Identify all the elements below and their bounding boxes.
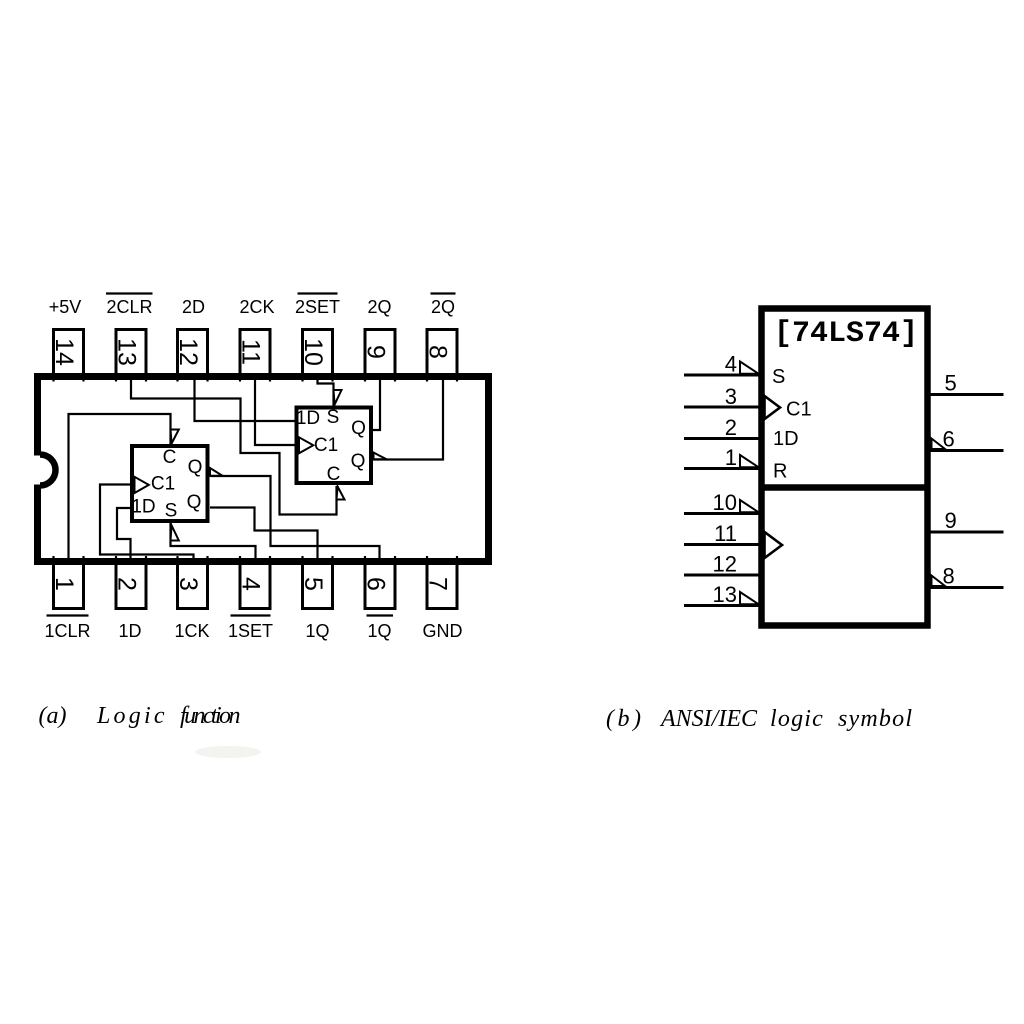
svg-text:12: 12 [713, 552, 737, 577]
svg-text:3: 3 [174, 577, 202, 591]
svg-text:11: 11 [237, 339, 265, 365]
svg-text:10: 10 [299, 338, 327, 366]
svg-text:symbol: symbol [838, 706, 913, 732]
svg-text:ANSI/IEC: ANSI/IEC [659, 706, 758, 732]
svg-text:13: 13 [713, 582, 737, 607]
svg-text:14: 14 [50, 338, 78, 366]
svg-text:9: 9 [362, 345, 390, 359]
svg-text:S: S [327, 407, 340, 428]
svg-text:1CLR: 1CLR [44, 621, 90, 641]
svg-text:9: 9 [945, 508, 957, 533]
svg-text:2: 2 [113, 577, 141, 591]
svg-text:2: 2 [725, 415, 737, 440]
svg-text:2Q: 2Q [431, 297, 455, 317]
svg-text:12: 12 [174, 338, 202, 366]
svg-text:1SET: 1SET [228, 621, 273, 641]
svg-text:2CLR: 2CLR [106, 297, 152, 317]
svg-text:11: 11 [714, 521, 737, 546]
svg-text:1D: 1D [773, 428, 799, 450]
svg-text:Q: Q [351, 418, 366, 439]
svg-text:2CK: 2CK [239, 297, 274, 317]
svg-text:(b): (b) [606, 706, 644, 732]
svg-text:13: 13 [113, 338, 141, 366]
svg-text:S: S [772, 366, 785, 388]
svg-text:function: function [180, 703, 239, 729]
svg-text:5: 5 [299, 577, 327, 591]
svg-text:7: 7 [424, 577, 452, 591]
svg-text:10: 10 [713, 490, 737, 515]
svg-text:[74LS74]: [74LS74] [774, 317, 918, 351]
svg-text:C: C [327, 464, 341, 485]
svg-text:C1: C1 [314, 435, 338, 456]
svg-text:1D: 1D [296, 408, 320, 429]
svg-text:4: 4 [725, 352, 737, 377]
svg-text:1Q: 1Q [305, 621, 329, 641]
svg-text:8: 8 [424, 345, 452, 359]
svg-text:4: 4 [237, 577, 265, 591]
svg-text:2D: 2D [182, 297, 205, 317]
svg-text:S: S [165, 501, 178, 522]
svg-text:C: C [163, 447, 177, 468]
svg-text:5: 5 [945, 371, 957, 396]
svg-text:(a): (a) [39, 703, 67, 729]
svg-text:1: 1 [50, 577, 78, 591]
svg-text:1Q: 1Q [367, 621, 391, 641]
svg-text:+5V: +5V [49, 297, 82, 317]
svg-text:6: 6 [362, 577, 390, 591]
svg-text:1D: 1D [131, 497, 155, 518]
svg-text:R: R [773, 461, 787, 483]
svg-text:3: 3 [725, 384, 737, 409]
svg-text:2Q: 2Q [367, 297, 391, 317]
svg-text:C1: C1 [151, 474, 175, 495]
svg-text:logic: logic [770, 706, 824, 732]
svg-text:Logic: Logic [96, 703, 168, 729]
svg-text:2SET: 2SET [295, 297, 340, 317]
svg-text:GND: GND [423, 621, 463, 641]
svg-text:Q: Q [187, 492, 202, 513]
svg-text:Q: Q [188, 457, 203, 478]
svg-text:C1: C1 [786, 399, 812, 421]
svg-text:1D: 1D [118, 621, 141, 641]
svg-text:1: 1 [725, 445, 737, 470]
svg-text:1CK: 1CK [174, 621, 209, 641]
svg-text:Q: Q [351, 451, 366, 472]
